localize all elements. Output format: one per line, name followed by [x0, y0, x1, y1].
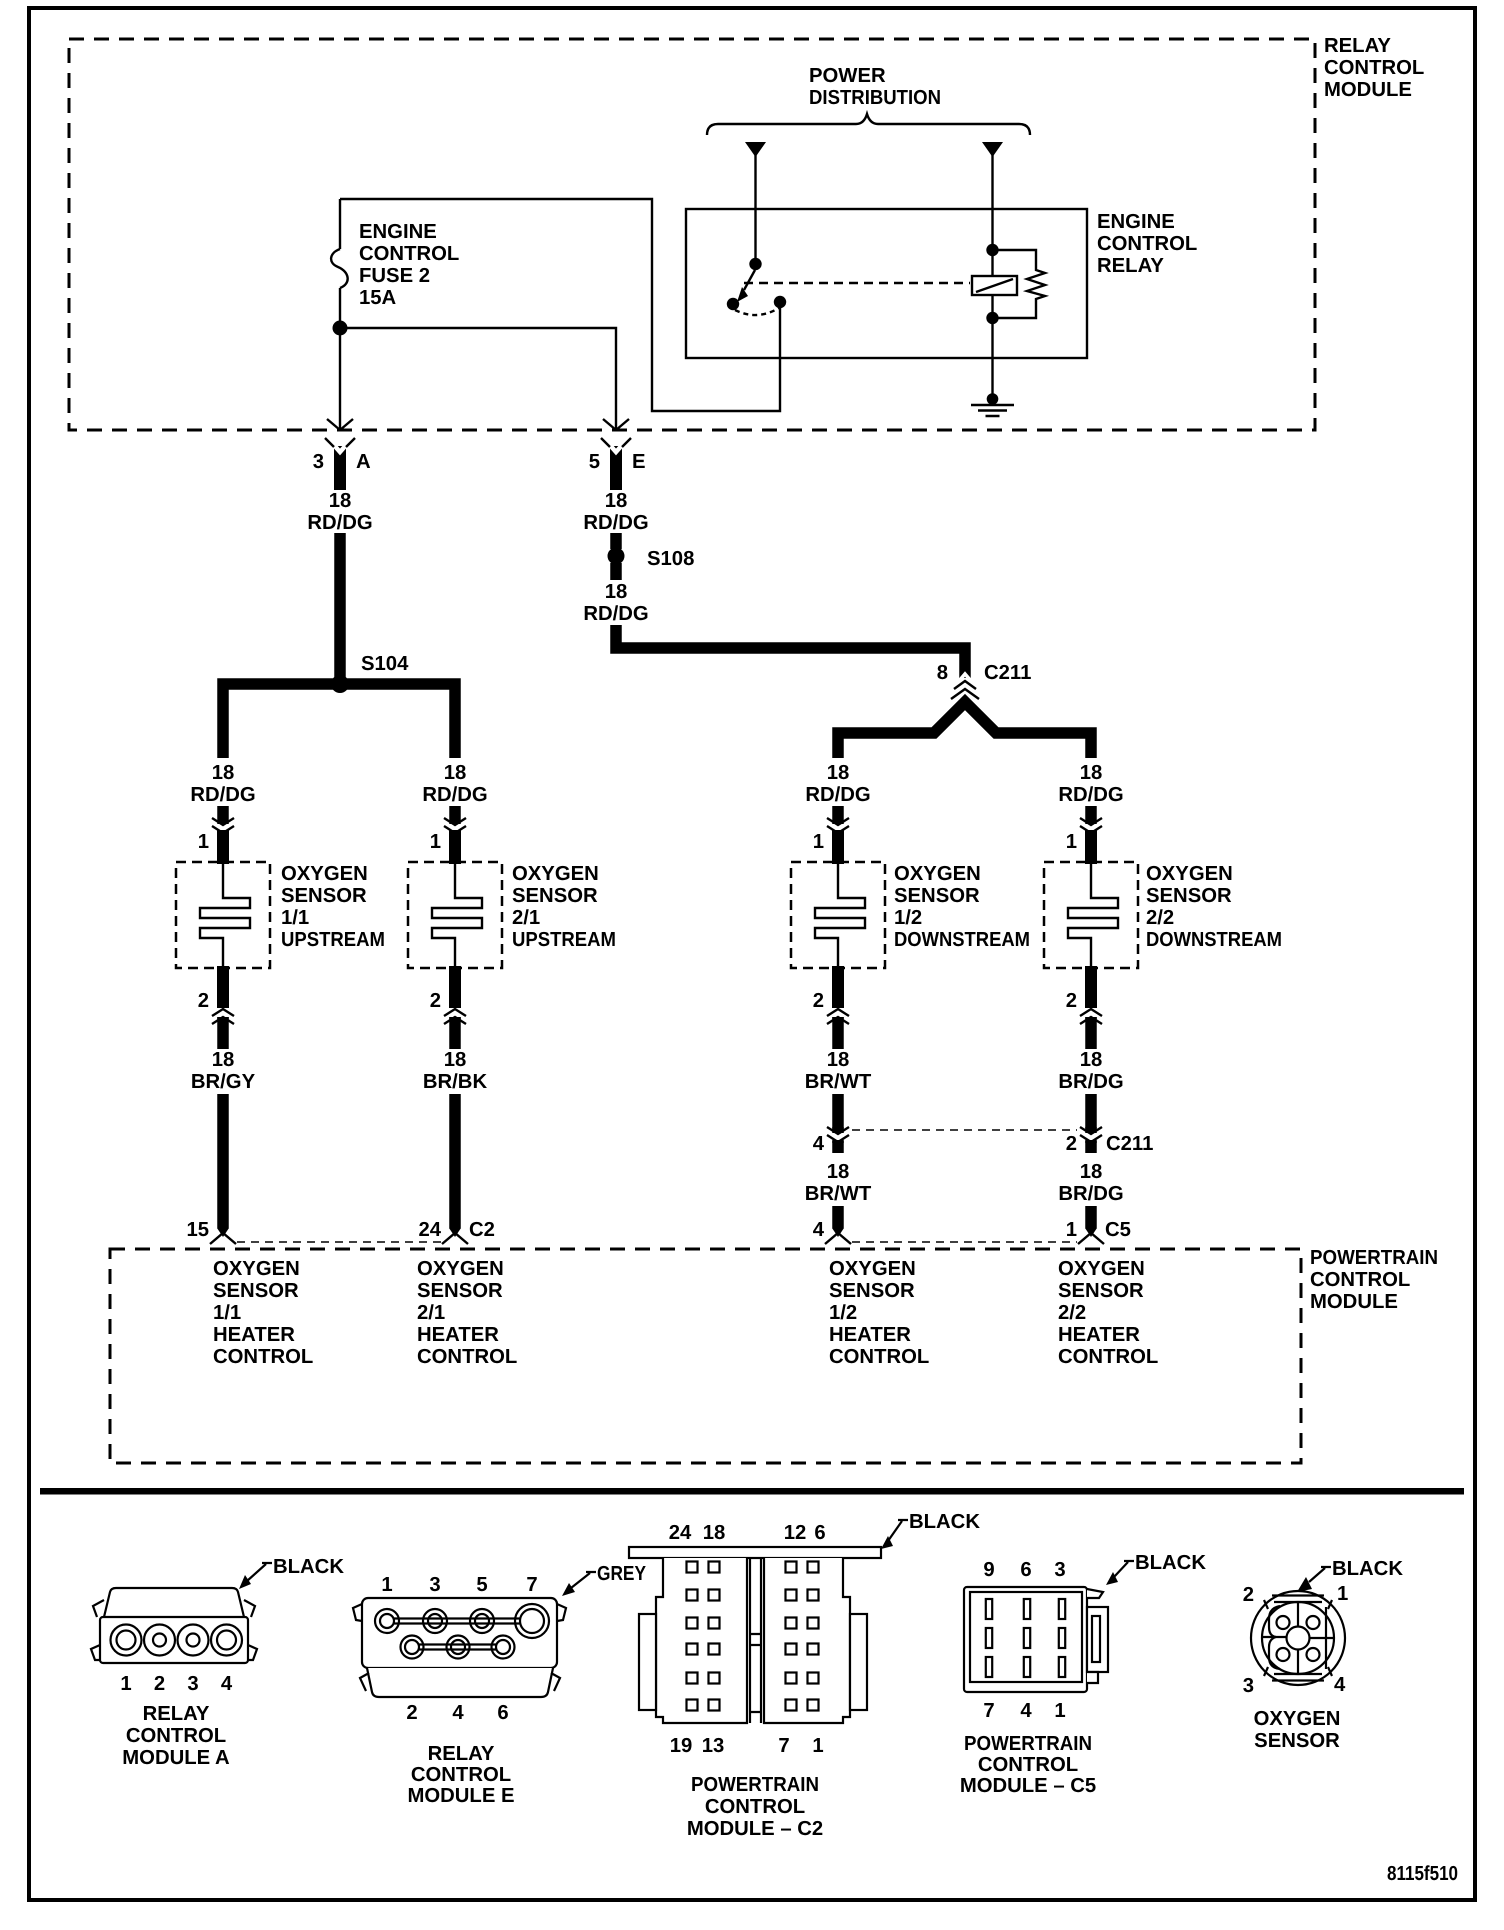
svg-text:OXYGEN: OXYGEN: [213, 1258, 300, 1280]
svg-text:1: 1: [813, 831, 824, 853]
svg-text:18: 18: [1080, 1049, 1103, 1071]
svg-text:CONTROL: CONTROL: [1097, 233, 1197, 255]
svg-text:RD/DG: RD/DG: [1058, 784, 1123, 806]
svg-text:POWERTRAIN: POWERTRAIN: [691, 1774, 819, 1796]
svg-text:SENSOR: SENSOR: [281, 885, 367, 907]
svg-text:POWER: POWER: [809, 65, 886, 87]
svg-text:OXYGEN: OXYGEN: [894, 863, 981, 885]
svg-text:1/2: 1/2: [894, 907, 922, 929]
svg-text:RD/DG: RD/DG: [805, 784, 870, 806]
svg-text:18: 18: [444, 1049, 467, 1071]
svg-text:FUSE 2: FUSE 2: [359, 265, 430, 287]
svg-text:4: 4: [813, 1219, 825, 1241]
svg-text:C211: C211: [1106, 1133, 1153, 1155]
svg-text:SENSOR: SENSOR: [829, 1280, 915, 1302]
svg-text:BLACK: BLACK: [1135, 1552, 1206, 1574]
svg-text:18: 18: [1080, 1161, 1103, 1183]
svg-text:BR/GY: BR/GY: [191, 1071, 256, 1093]
svg-text:7: 7: [983, 1700, 994, 1722]
svg-text:1/1: 1/1: [213, 1302, 241, 1324]
svg-text:RELAY: RELAY: [1324, 35, 1391, 57]
svg-text:CONTROL: CONTROL: [417, 1346, 517, 1368]
svg-text:MODULE E: MODULE E: [407, 1785, 514, 1807]
svg-text:C211: C211: [984, 662, 1031, 684]
svg-text:5: 5: [476, 1574, 487, 1596]
svg-text:1: 1: [1337, 1583, 1348, 1605]
svg-text:4: 4: [452, 1702, 464, 1724]
svg-text:1: 1: [1054, 1700, 1065, 1722]
svg-text:RD/DG: RD/DG: [422, 784, 487, 806]
svg-text:8115f510: 8115f510: [1387, 1863, 1458, 1885]
svg-text:4: 4: [1020, 1700, 1032, 1722]
svg-text:POWERTRAIN: POWERTRAIN: [964, 1733, 1092, 1755]
svg-text:2/2: 2/2: [1058, 1302, 1086, 1324]
svg-text:15: 15: [186, 1219, 209, 1241]
svg-text:1: 1: [381, 1574, 392, 1596]
svg-text:BLACK: BLACK: [273, 1556, 344, 1578]
svg-text:ENGINE: ENGINE: [359, 221, 437, 243]
svg-text:MODULE: MODULE: [1324, 79, 1412, 101]
svg-text:18: 18: [827, 1049, 850, 1071]
svg-text:BR/WT: BR/WT: [805, 1183, 872, 1205]
svg-text:18: 18: [605, 581, 628, 603]
svg-text:6: 6: [497, 1702, 508, 1724]
svg-text:SENSOR: SENSOR: [1146, 885, 1232, 907]
svg-text:2: 2: [813, 990, 824, 1012]
svg-text:2/1: 2/1: [512, 907, 540, 929]
svg-text:18: 18: [329, 490, 352, 512]
svg-text:3: 3: [313, 451, 324, 473]
svg-text:BLACK: BLACK: [909, 1511, 980, 1533]
svg-text:15A: 15A: [359, 287, 397, 309]
svg-text:18: 18: [827, 762, 850, 784]
svg-text:GREY: GREY: [597, 1563, 646, 1585]
svg-text:OXYGEN: OXYGEN: [1146, 863, 1233, 885]
svg-text:HEATER: HEATER: [829, 1324, 911, 1346]
svg-text:3: 3: [1054, 1559, 1065, 1581]
svg-text:2: 2: [198, 990, 209, 1012]
svg-text:OXYGEN: OXYGEN: [281, 863, 368, 885]
svg-text:ENGINE: ENGINE: [1097, 211, 1175, 233]
svg-text:19: 19: [670, 1735, 693, 1757]
svg-text:2: 2: [1066, 990, 1077, 1012]
svg-text:4: 4: [813, 1133, 825, 1155]
svg-text:CONTROL: CONTROL: [829, 1346, 929, 1368]
svg-text:RELAY: RELAY: [143, 1703, 210, 1725]
svg-text:DISTRIBUTION: DISTRIBUTION: [809, 87, 941, 109]
svg-text:CONTROL: CONTROL: [359, 243, 459, 265]
svg-text:CONTROL: CONTROL: [1310, 1269, 1410, 1291]
svg-text:CONTROL: CONTROL: [1324, 57, 1424, 79]
svg-text:SENSOR: SENSOR: [894, 885, 980, 907]
svg-text:4: 4: [1334, 1674, 1346, 1696]
svg-text:S108: S108: [647, 548, 694, 570]
svg-text:OXYGEN: OXYGEN: [512, 863, 599, 885]
svg-text:3: 3: [1243, 1675, 1254, 1697]
svg-text:HEATER: HEATER: [213, 1324, 295, 1346]
svg-text:BLACK: BLACK: [1332, 1558, 1403, 1580]
svg-text:4: 4: [221, 1673, 233, 1695]
svg-text:BR/DG: BR/DG: [1058, 1071, 1123, 1093]
svg-text:6: 6: [1020, 1559, 1031, 1581]
svg-text:RD/DG: RD/DG: [307, 512, 372, 534]
svg-text:18: 18: [212, 1049, 235, 1071]
svg-text:CONTROL: CONTROL: [213, 1346, 313, 1368]
svg-text:BR/DG: BR/DG: [1058, 1183, 1123, 1205]
svg-text:18: 18: [212, 762, 235, 784]
svg-text:2/2: 2/2: [1146, 907, 1174, 929]
svg-text:18: 18: [703, 1522, 726, 1544]
svg-text:CONTROL: CONTROL: [705, 1796, 805, 1818]
svg-text:POWERTRAIN: POWERTRAIN: [1310, 1247, 1438, 1269]
svg-text:8: 8: [937, 662, 948, 684]
svg-text:2/1: 2/1: [417, 1302, 445, 1324]
svg-text:C5: C5: [1105, 1219, 1131, 1241]
svg-text:MODULE A: MODULE A: [122, 1747, 230, 1769]
svg-text:7: 7: [778, 1735, 789, 1757]
svg-text:CONTROL: CONTROL: [1058, 1346, 1158, 1368]
svg-text:1: 1: [430, 831, 441, 853]
svg-text:SENSOR: SENSOR: [417, 1280, 503, 1302]
svg-text:2: 2: [154, 1673, 165, 1695]
svg-text:5: 5: [589, 451, 600, 473]
svg-text:18: 18: [605, 490, 628, 512]
svg-text:13: 13: [702, 1735, 725, 1757]
svg-text:1: 1: [812, 1735, 823, 1757]
svg-text:OXYGEN: OXYGEN: [1058, 1258, 1145, 1280]
svg-text:BR/WT: BR/WT: [805, 1071, 872, 1093]
svg-text:E: E: [632, 451, 646, 473]
svg-text:A: A: [356, 451, 371, 473]
svg-text:RELAY: RELAY: [428, 1743, 495, 1765]
svg-text:OXYGEN: OXYGEN: [1254, 1708, 1341, 1730]
svg-text:3: 3: [187, 1673, 198, 1695]
svg-text:1: 1: [120, 1673, 131, 1695]
svg-text:3: 3: [429, 1574, 440, 1596]
svg-text:18: 18: [1080, 762, 1103, 784]
svg-text:MODULE: MODULE: [1310, 1291, 1398, 1313]
svg-text:SENSOR: SENSOR: [1254, 1730, 1340, 1752]
svg-text:RD/DG: RD/DG: [583, 603, 648, 625]
svg-text:24: 24: [669, 1522, 692, 1544]
svg-text:RD/DG: RD/DG: [583, 512, 648, 534]
svg-text:2: 2: [1243, 1584, 1254, 1606]
svg-text:S104: S104: [361, 653, 409, 675]
svg-text:CONTROL: CONTROL: [126, 1725, 226, 1747]
svg-text:C2: C2: [469, 1219, 495, 1241]
svg-text:BR/BK: BR/BK: [423, 1071, 488, 1093]
svg-text:18: 18: [444, 762, 467, 784]
svg-text:2: 2: [1066, 1133, 1077, 1155]
svg-text:9: 9: [983, 1559, 994, 1581]
svg-text:UPSTREAM: UPSTREAM: [281, 929, 385, 951]
svg-text:SENSOR: SENSOR: [1058, 1280, 1144, 1302]
svg-text:1/2: 1/2: [829, 1302, 857, 1324]
svg-text:24: 24: [418, 1219, 441, 1241]
svg-text:2: 2: [406, 1702, 417, 1724]
svg-text:RD/DG: RD/DG: [190, 784, 255, 806]
svg-text:SENSOR: SENSOR: [512, 885, 598, 907]
svg-text:18: 18: [827, 1161, 850, 1183]
svg-text:1/1: 1/1: [281, 907, 309, 929]
svg-text:SENSOR: SENSOR: [213, 1280, 299, 1302]
svg-text:DOWNSTREAM: DOWNSTREAM: [1146, 929, 1282, 951]
svg-text:HEATER: HEATER: [1058, 1324, 1140, 1346]
svg-text:12: 12: [784, 1522, 807, 1544]
svg-text:1: 1: [198, 831, 209, 853]
svg-text:UPSTREAM: UPSTREAM: [512, 929, 616, 951]
svg-text:CONTROL: CONTROL: [411, 1764, 511, 1786]
svg-text:RELAY: RELAY: [1097, 255, 1164, 277]
svg-text:HEATER: HEATER: [417, 1324, 499, 1346]
svg-text:DOWNSTREAM: DOWNSTREAM: [894, 929, 1030, 951]
svg-text:1: 1: [1066, 1219, 1077, 1241]
svg-text:CONTROL: CONTROL: [978, 1754, 1078, 1776]
svg-text:1: 1: [1066, 831, 1077, 853]
svg-text:2: 2: [430, 990, 441, 1012]
svg-text:MODULE – C2: MODULE – C2: [687, 1818, 823, 1840]
svg-text:OXYGEN: OXYGEN: [829, 1258, 916, 1280]
svg-text:7: 7: [526, 1574, 537, 1596]
svg-text:MODULE – C5: MODULE – C5: [960, 1775, 1096, 1797]
svg-text:6: 6: [814, 1522, 825, 1544]
svg-text:OXYGEN: OXYGEN: [417, 1258, 504, 1280]
